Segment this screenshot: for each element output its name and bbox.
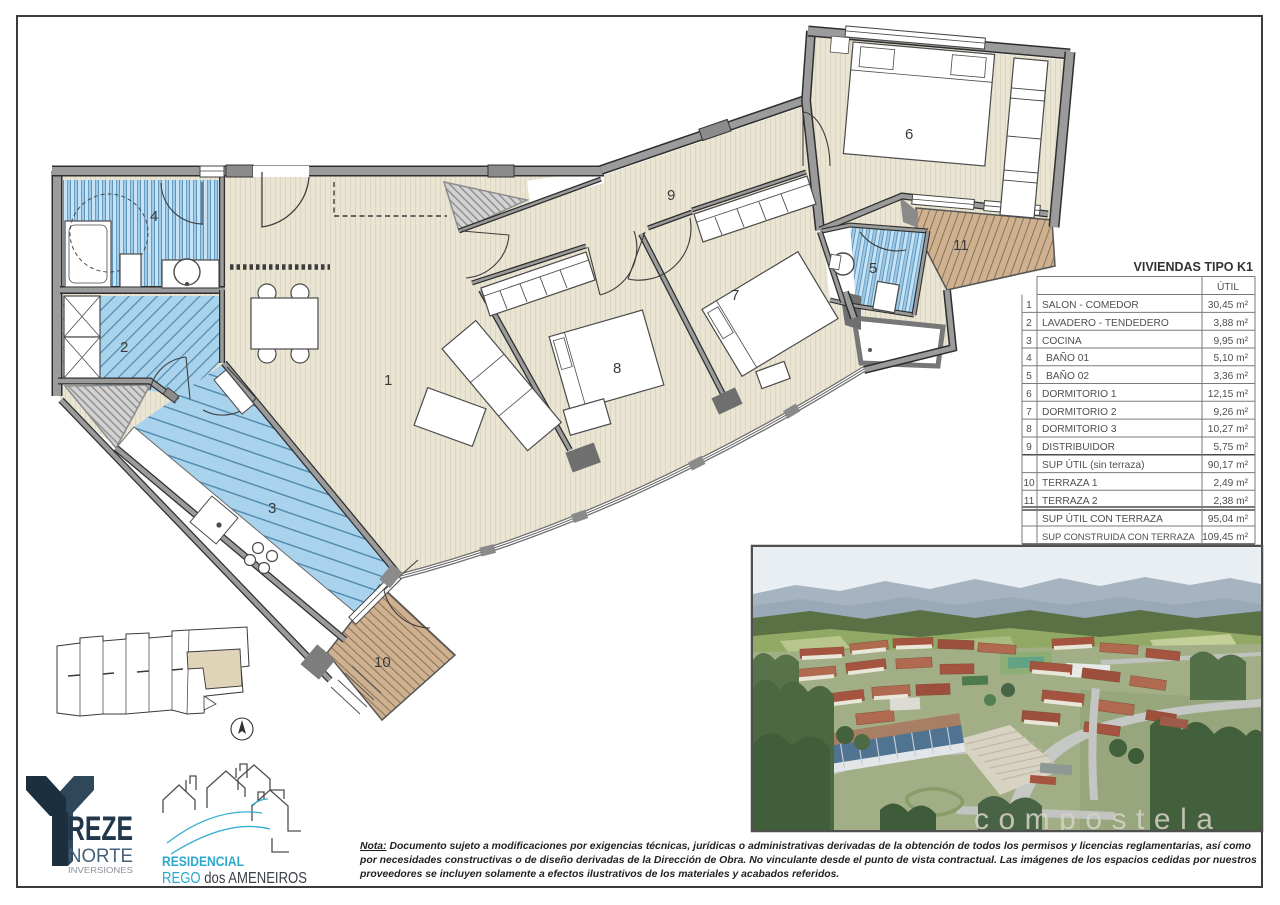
svg-text:LAVADERO - TENDEDERO: LAVADERO - TENDEDERO <box>1042 318 1169 329</box>
svg-text:10: 10 <box>374 654 391 671</box>
svg-text:3,36 m²: 3,36 m² <box>1213 371 1248 382</box>
svg-text:NORTE: NORTE <box>68 846 133 867</box>
svg-text:8: 8 <box>613 360 621 377</box>
svg-text:INVERSIONES: INVERSIONES <box>68 865 133 875</box>
svg-text:COCINA: COCINA <box>1042 336 1082 347</box>
svg-text:REGO dos AMENEIROS: REGO dos AMENEIROS <box>162 870 307 887</box>
svg-text:por necesidades constructivas: por necesidades constructivas o de diseñ… <box>359 855 1257 866</box>
svg-text:5,10 m²: 5,10 m² <box>1213 353 1248 364</box>
svg-text:12,15 m²: 12,15 m² <box>1208 389 1249 400</box>
svg-text:VIVIENDAS TIPO K1: VIVIENDAS TIPO K1 <box>1134 260 1254 274</box>
svg-text:5: 5 <box>869 260 877 277</box>
svg-text:95,04 m²: 95,04 m² <box>1208 514 1249 525</box>
svg-text:7: 7 <box>731 287 739 304</box>
svg-text:10: 10 <box>1023 478 1035 489</box>
svg-text:9: 9 <box>1026 442 1032 453</box>
svg-text:SUP CONSTRUIDA CON TERRAZA: SUP CONSTRUIDA CON TERRAZA <box>1042 531 1196 542</box>
svg-text:SALON - COMEDOR: SALON - COMEDOR <box>1042 300 1139 311</box>
svg-text:2,49 m²: 2,49 m² <box>1213 478 1248 489</box>
svg-text:BAÑO 01: BAÑO 01 <box>1046 351 1089 364</box>
svg-text:3: 3 <box>1026 336 1032 347</box>
svg-text:DORMITORIO 3: DORMITORIO 3 <box>1042 424 1117 435</box>
svg-text:11: 11 <box>1024 496 1035 507</box>
svg-text:DISTRIBUIDOR: DISTRIBUIDOR <box>1042 442 1115 453</box>
svg-text:TERRAZA 2: TERRAZA 2 <box>1042 496 1098 507</box>
svg-text:9,95 m²: 9,95 m² <box>1213 336 1248 347</box>
svg-text:ÚTIL: ÚTIL <box>1217 280 1239 293</box>
svg-text:11: 11 <box>953 237 969 254</box>
svg-text:proveedores se incluyen solame: proveedores se incluyen solamente a efec… <box>359 869 839 880</box>
svg-text:5: 5 <box>1026 371 1032 382</box>
svg-text:TERRAZA 1: TERRAZA 1 <box>1042 478 1098 489</box>
svg-text:6: 6 <box>905 126 913 143</box>
svg-text:Nota: Documento sujeto a modif: Nota: Documento sujeto a modificaciones … <box>360 841 1252 852</box>
svg-text:6: 6 <box>1026 389 1032 400</box>
svg-text:5,75 m²: 5,75 m² <box>1213 442 1248 453</box>
svg-text:30,45 m²: 30,45 m² <box>1208 300 1249 311</box>
svg-text:REZE: REZE <box>67 810 133 848</box>
svg-text:10,27 m²: 10,27 m² <box>1208 424 1249 435</box>
svg-text:1: 1 <box>384 372 392 389</box>
svg-text:4: 4 <box>1026 353 1032 364</box>
svg-text:BAÑO 02: BAÑO 02 <box>1046 369 1089 382</box>
svg-text:2,38 m²: 2,38 m² <box>1213 496 1248 507</box>
svg-text:3,88 m²: 3,88 m² <box>1213 318 1248 329</box>
svg-text:2: 2 <box>1026 318 1032 329</box>
svg-text:2: 2 <box>120 339 128 356</box>
svg-text:3: 3 <box>268 500 276 517</box>
svg-text:4: 4 <box>150 208 158 225</box>
svg-text:DORMITORIO 2: DORMITORIO 2 <box>1042 407 1117 418</box>
svg-text:109,45 m²: 109,45 m² <box>1202 532 1248 543</box>
svg-text:90,17 m²: 90,17 m² <box>1208 460 1249 471</box>
svg-text:SUP ÚTIL (sin terraza): SUP ÚTIL (sin terraza) <box>1042 458 1144 471</box>
svg-text:9,26 m²: 9,26 m² <box>1213 407 1248 418</box>
svg-text:7: 7 <box>1026 407 1032 418</box>
svg-text:1: 1 <box>1026 300 1032 311</box>
svg-text:8: 8 <box>1026 424 1032 435</box>
svg-text:SUP ÚTIL CON TERRAZA: SUP ÚTIL CON TERRAZA <box>1042 512 1163 525</box>
svg-text:9: 9 <box>667 187 675 204</box>
svg-text:RESIDENCIAL: RESIDENCIAL <box>162 854 244 869</box>
svg-text:DORMITORIO 1: DORMITORIO 1 <box>1042 389 1117 400</box>
